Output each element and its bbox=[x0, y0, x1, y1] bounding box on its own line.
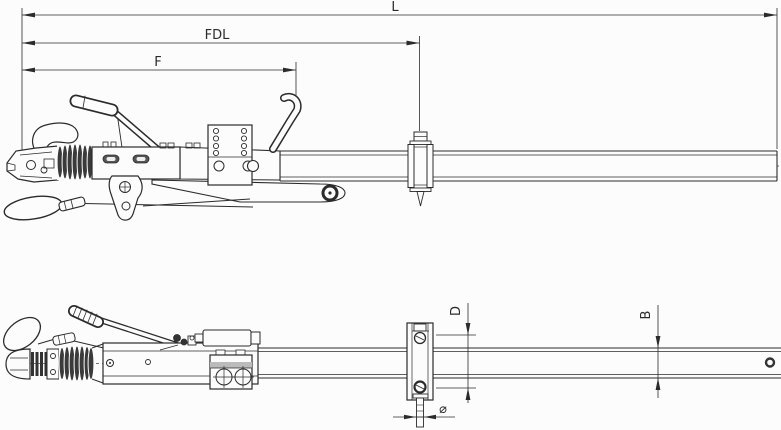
shackle-bracket-side bbox=[109, 176, 142, 220]
dimension-label-FDL: FDL bbox=[205, 28, 230, 43]
dimension-label-L: L bbox=[391, 0, 399, 15]
coupling-head-plan bbox=[6, 349, 59, 379]
clamp-bracket-plan bbox=[407, 323, 433, 427]
dimension-diameter: ⌀ bbox=[393, 402, 455, 419]
cable-clip-icon bbox=[58, 196, 85, 211]
mounting-plate-side bbox=[208, 125, 253, 185]
overrun-coupling-drawing: L FDL F bbox=[0, 0, 781, 430]
arrowhead-right-icon bbox=[283, 68, 296, 73]
cable-clip-icon bbox=[52, 332, 75, 345]
arrowhead-up-icon bbox=[466, 388, 471, 400]
dimension-label-diameter: ⌀ bbox=[439, 402, 447, 417]
arrowhead-down-icon bbox=[466, 323, 471, 335]
dimension-label-B: B bbox=[639, 311, 654, 320]
arrowhead-right-icon bbox=[404, 415, 416, 420]
technical-drawing-sheet: L FDL F bbox=[0, 0, 781, 430]
arrowhead-right-icon bbox=[407, 41, 420, 46]
handbrake-lever-plan bbox=[73, 306, 177, 345]
arrowhead-right-icon bbox=[764, 13, 777, 18]
drawbar-tube-side bbox=[280, 151, 777, 181]
pivot-pin-icon bbox=[248, 161, 259, 172]
dimension-label-F: F bbox=[154, 55, 161, 70]
arrowhead-up-icon bbox=[656, 378, 661, 390]
mounting-plate-plan bbox=[210, 350, 254, 389]
drawbar-rail-plan bbox=[252, 348, 781, 378]
arrowhead-down-icon bbox=[656, 336, 661, 348]
tube-clamp-side bbox=[408, 132, 433, 206]
dimension-F: F bbox=[22, 55, 296, 72]
arrowhead-left-icon bbox=[424, 415, 436, 420]
bellows-side bbox=[57, 144, 93, 180]
arrowhead-left-icon bbox=[22, 68, 35, 73]
dimension-L: L bbox=[22, 0, 777, 17]
dimension-FDL: FDL bbox=[22, 28, 420, 45]
arrowhead-left-icon bbox=[22, 41, 35, 46]
arrowhead-left-icon bbox=[22, 13, 35, 18]
bent-support-rod-side bbox=[273, 97, 298, 149]
dimension-label-D: D bbox=[449, 306, 464, 316]
